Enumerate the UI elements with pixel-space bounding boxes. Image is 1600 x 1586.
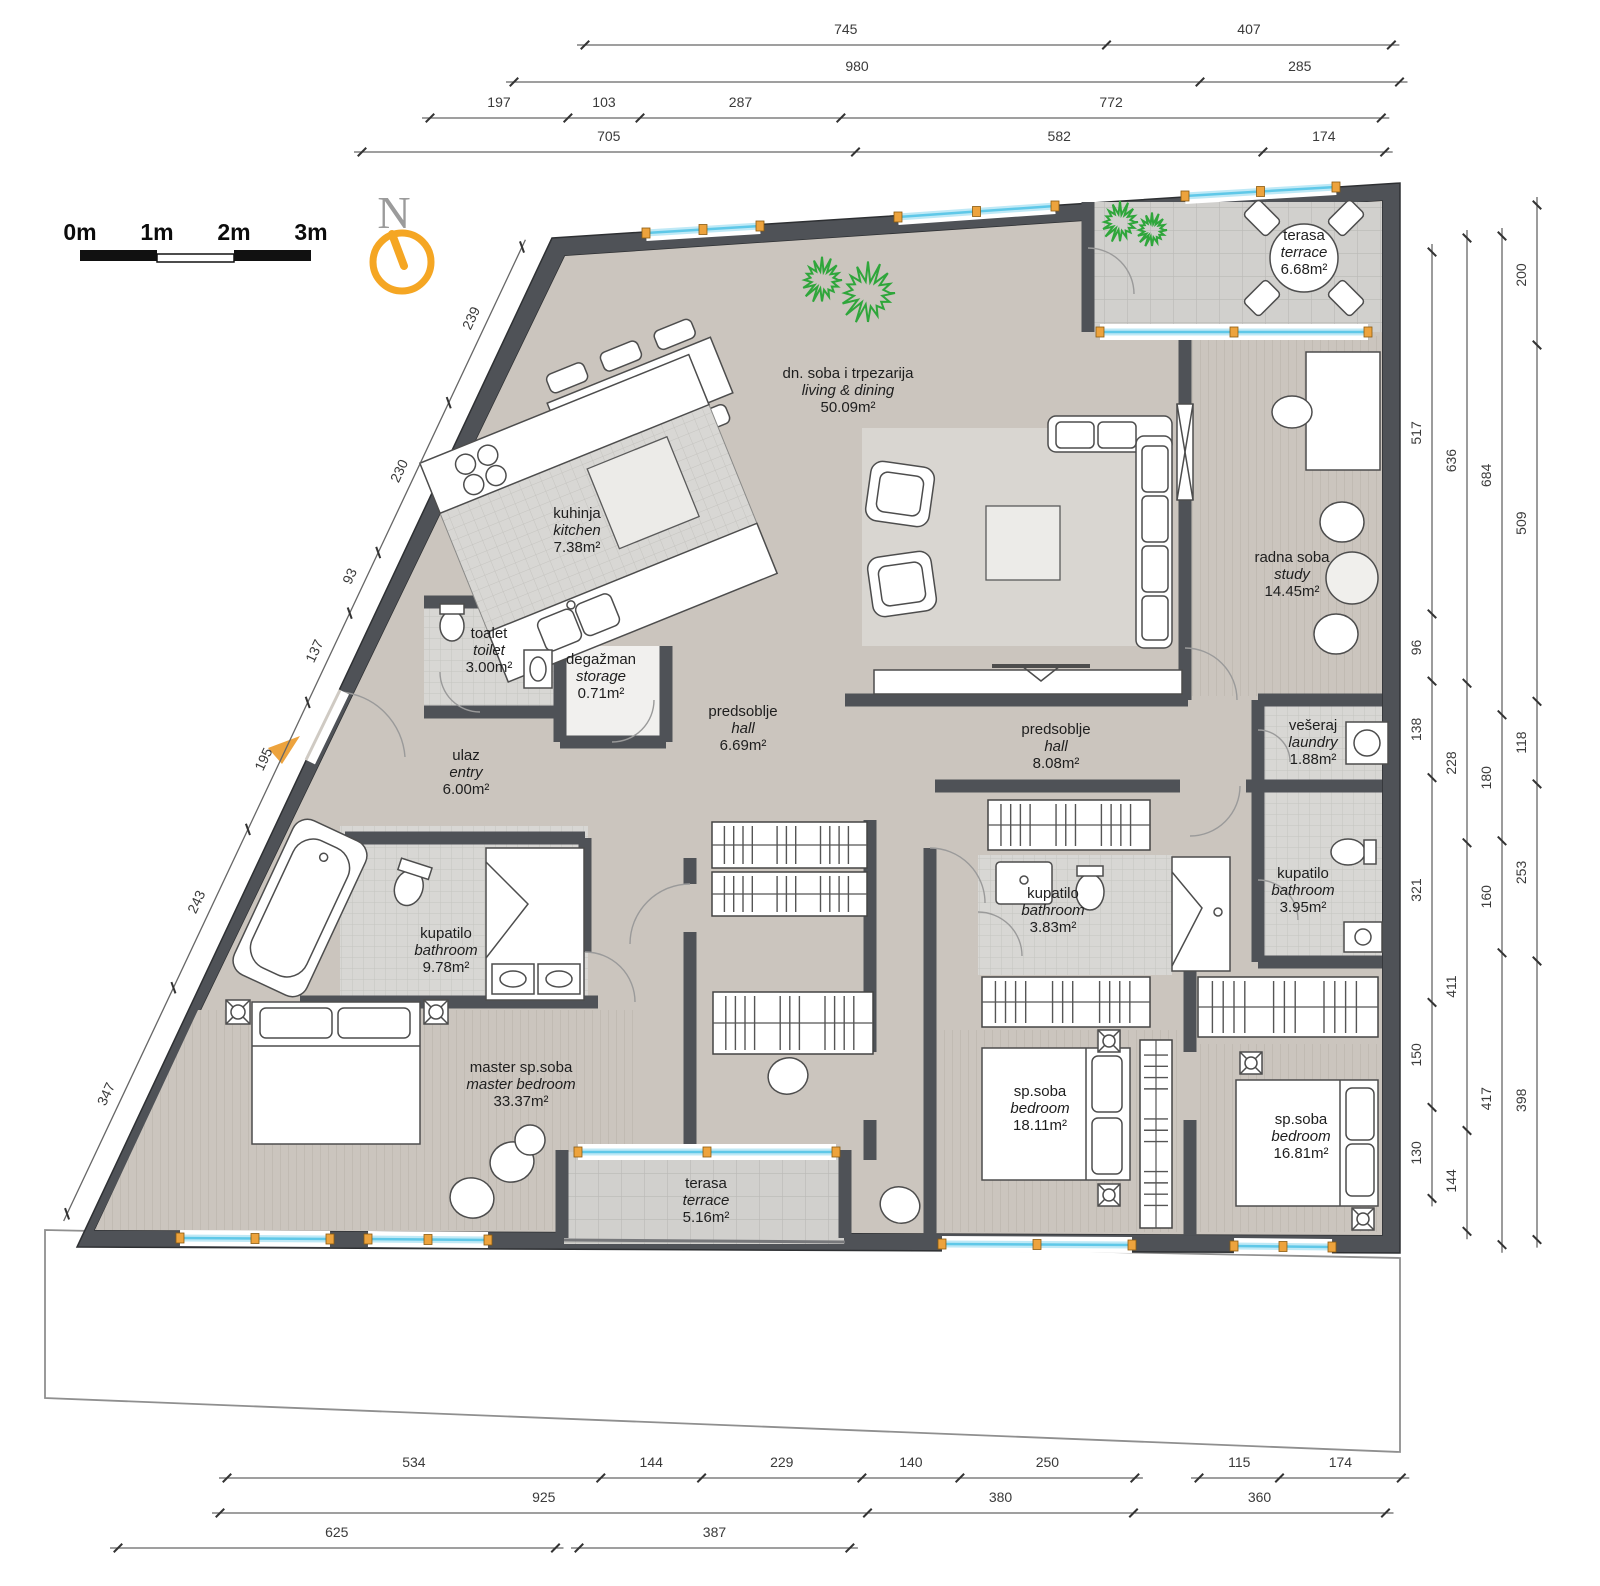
dimension-label: 144 [1443,1169,1459,1193]
room-name: ulaz [452,747,480,764]
room-area: 8.08m² [1033,755,1080,772]
dimension-label: 138 [1408,718,1424,742]
dimension-label: 411 [1443,975,1459,998]
room-name: master sp.soba [470,1059,573,1076]
room-area: 6.68m² [1281,261,1328,278]
dim-chain-right-1: 51796138321150130 [1408,244,1436,1206]
room-name-en: hall [1044,738,1068,755]
dimension-label: 407 [1237,21,1261,37]
room-label-kitchen: kuhinjakitchen7.38m² [553,505,601,556]
wardrobe [982,977,1150,1027]
dimension-label: 517 [1408,421,1424,445]
dimension-label: 130 [1408,1141,1424,1165]
room-name: kupatilo [420,925,472,942]
wardrobe [712,872,867,916]
dimension-label: 93 [339,565,360,586]
room-label-bath-mid: kupatilobathroom3.83m² [1021,885,1084,936]
room-area: 1.88m² [1290,751,1337,768]
dimension-label: 250 [1036,1454,1060,1470]
dim-chain-bottom-1a: 534144229140250 [219,1454,1143,1482]
room-name-en: terrace [1281,244,1328,261]
room-label-laundry: vešerajlaundry1.88m² [1288,717,1339,768]
dimension-label: 229 [770,1454,794,1470]
dimension-label: 684 [1478,464,1494,488]
window [574,1147,840,1157]
dimension-label: 380 [989,1489,1013,1505]
room-label-terrace-bottom: terasaterrace5.16m² [683,1175,730,1226]
room-area: 9.78m² [423,959,470,976]
room-name-en: bathroom [1271,882,1334,899]
room-name: toalet [471,625,509,642]
window [176,1233,334,1244]
dim-chain-bottom-2: 925380360 [212,1489,1394,1517]
wardrobe [1198,977,1378,1037]
room-area: 33.37m² [493,1093,548,1110]
dimension-label: 509 [1513,511,1529,535]
dimension-label: 625 [325,1524,349,1540]
room-area: 7.38m² [554,539,601,556]
dimension-label: 144 [640,1454,664,1470]
dimension-label: 285 [1288,58,1312,74]
room-name-en: study [1274,566,1311,583]
room-name: terasa [1283,227,1325,244]
room-name-en: master bedroom [466,1076,575,1093]
dimension-label: 772 [1099,94,1123,110]
room-name-en: laundry [1288,734,1339,751]
tv-bench [874,666,1182,694]
room-name: predsoblje [1021,721,1090,738]
dimension-label: 160 [1478,885,1494,909]
scale-segment-3 [234,250,311,261]
dimension-label: 140 [899,1454,923,1470]
scale-label-2: 2m [217,219,250,245]
scale-label-3: 3m [294,219,327,245]
room-area: 0.71m² [578,685,625,702]
dimension-label: 636 [1443,449,1459,473]
scale-bar: 0m 1m 2m 3m [63,219,327,262]
room-label-bath-right: kupatilobathroom3.95m² [1271,865,1334,916]
wardrobe [712,822,867,868]
dimension-label: 96 [1408,640,1424,656]
dimension-label: 980 [845,58,869,74]
scale-label-1: 1m [140,219,173,245]
dimension-label: 582 [1048,128,1072,144]
entry-arrow-icon [268,736,300,764]
room-area: 18.11m² [1013,1117,1067,1134]
window [364,1234,492,1245]
dimension-label: 243 [184,888,209,916]
dimension-label: 253 [1513,861,1529,885]
room-name-en: bedroom [1010,1100,1069,1117]
dimension-label: 360 [1248,1489,1272,1505]
room-area: 6.00m² [443,781,490,798]
dim-chain-top-1: 745407 [577,21,1399,49]
room-name-en: bedroom [1271,1128,1330,1145]
wardrobe [988,800,1150,850]
room-name: radna soba [1254,549,1330,566]
room-area: 16.81m² [1273,1145,1328,1162]
dim-chain-bottom-3b: 387 [571,1524,858,1552]
room-name: dn. soba i trpezarija [783,365,915,382]
dimension-label: 150 [1408,1043,1424,1067]
room-name-en: entry [449,764,484,781]
room-area: 3.95m² [1280,899,1327,916]
dimension-label: 925 [532,1489,556,1505]
dimension-label: 347 [94,1080,119,1108]
north-indicator: N [373,187,431,291]
dimension-label: 197 [487,94,511,110]
dimension-label: 137 [302,637,327,665]
room-area: 3.00m² [466,659,513,676]
dimension-label: 118 [1513,731,1529,754]
room-name: sp.soba [1014,1083,1067,1100]
room-name-en: terrace [683,1192,730,1209]
dim-chain-right-4: 200509118253398 [1513,197,1541,1248]
room-label-bath-master: kupatilobathroom9.78m² [414,925,477,976]
dim-chain-bottom-3a: 625 [110,1524,564,1552]
dimension-label: 239 [459,304,484,332]
dim-chain-right-2: 636228411144 [1443,230,1471,1239]
dimension-label: 180 [1478,766,1494,790]
dimension-label: 200 [1513,263,1529,287]
dimension-label: 387 [703,1524,727,1540]
room-label-bedroom-18: sp.sobabedroom18.11m² [1010,1083,1069,1134]
room-area: 6.69m² [720,737,767,754]
room-area: 5.16m² [683,1209,730,1226]
room-area: 3.83m² [1030,919,1077,936]
dimension-label: 534 [402,1454,426,1470]
dimension-label: 398 [1513,1088,1529,1112]
room-name-en: bathroom [1021,902,1084,919]
room-name-en: storage [576,668,626,685]
dim-chain-top-2: 980285 [506,58,1408,86]
room-name: vešeraj [1289,717,1337,734]
room-name: kupatilo [1027,885,1079,902]
dimension-label: 228 [1443,751,1459,775]
dimension-label: 321 [1408,878,1424,902]
dimension-label: 705 [597,128,621,144]
dimension-label: 745 [834,21,858,37]
room-name: terasa [685,1175,727,1192]
north-needle [392,234,404,266]
room-name: sp.soba [1275,1111,1328,1128]
room-name-en: toilet [473,642,506,659]
armchair-2 [866,550,938,618]
floor-plan-canvas: 0m 1m 2m 3m N dn. soba i trpezarijalivin… [0,0,1600,1581]
window [938,1239,1136,1250]
room-name-en: kitchen [553,522,601,539]
armchair-1 [864,460,936,528]
dim-chain-bottom-1b: 115174 [1191,1454,1409,1482]
room-label-terrace-top: terasaterrace6.68m² [1281,227,1328,278]
coffee-table [986,506,1060,580]
dim-chain-top-4: 705582174 [354,128,1393,156]
scale-segment-1 [80,250,157,261]
room-area: 50.09m² [820,399,875,416]
dimension-label: 174 [1312,128,1336,144]
room-name: degažman [566,651,636,668]
room-name-en: bathroom [414,942,477,959]
window [1230,1241,1336,1252]
room-label-bedroom-16: sp.sobabedroom16.81m² [1271,1111,1330,1162]
scale-segment-2 [157,254,234,262]
master-bed [252,1002,420,1144]
scale-label-0: 0m [63,219,96,245]
window [1096,327,1372,337]
room-name-en: hall [731,720,755,737]
dimension-label: 103 [592,94,616,110]
site-boundary [45,1230,1400,1452]
wardrobe [1140,1040,1172,1228]
dimension-label: 230 [387,457,412,485]
dim-chain-top-3: 197103287772 [422,94,1389,122]
dimension-label: 417 [1478,1087,1494,1111]
wardrobe [713,992,873,1054]
washing-machine [1346,722,1388,764]
room-name: predsoblje [708,703,777,720]
room-area: 14.45m² [1264,583,1319,600]
floor-plan-page: 0m 1m 2m 3m N dn. soba i trpezarijalivin… [0,0,1600,1581]
room-name: kuhinja [553,505,601,522]
room-name: kupatilo [1277,865,1329,882]
dimension-label: 174 [1329,1454,1353,1470]
room-name-en: living & dining [802,382,895,399]
study-mirror [1177,404,1193,500]
dimension-label: 287 [729,94,753,110]
dim-chain-right-3: 684180160417 [1478,228,1506,1253]
dimension-label: 115 [1228,1454,1251,1470]
